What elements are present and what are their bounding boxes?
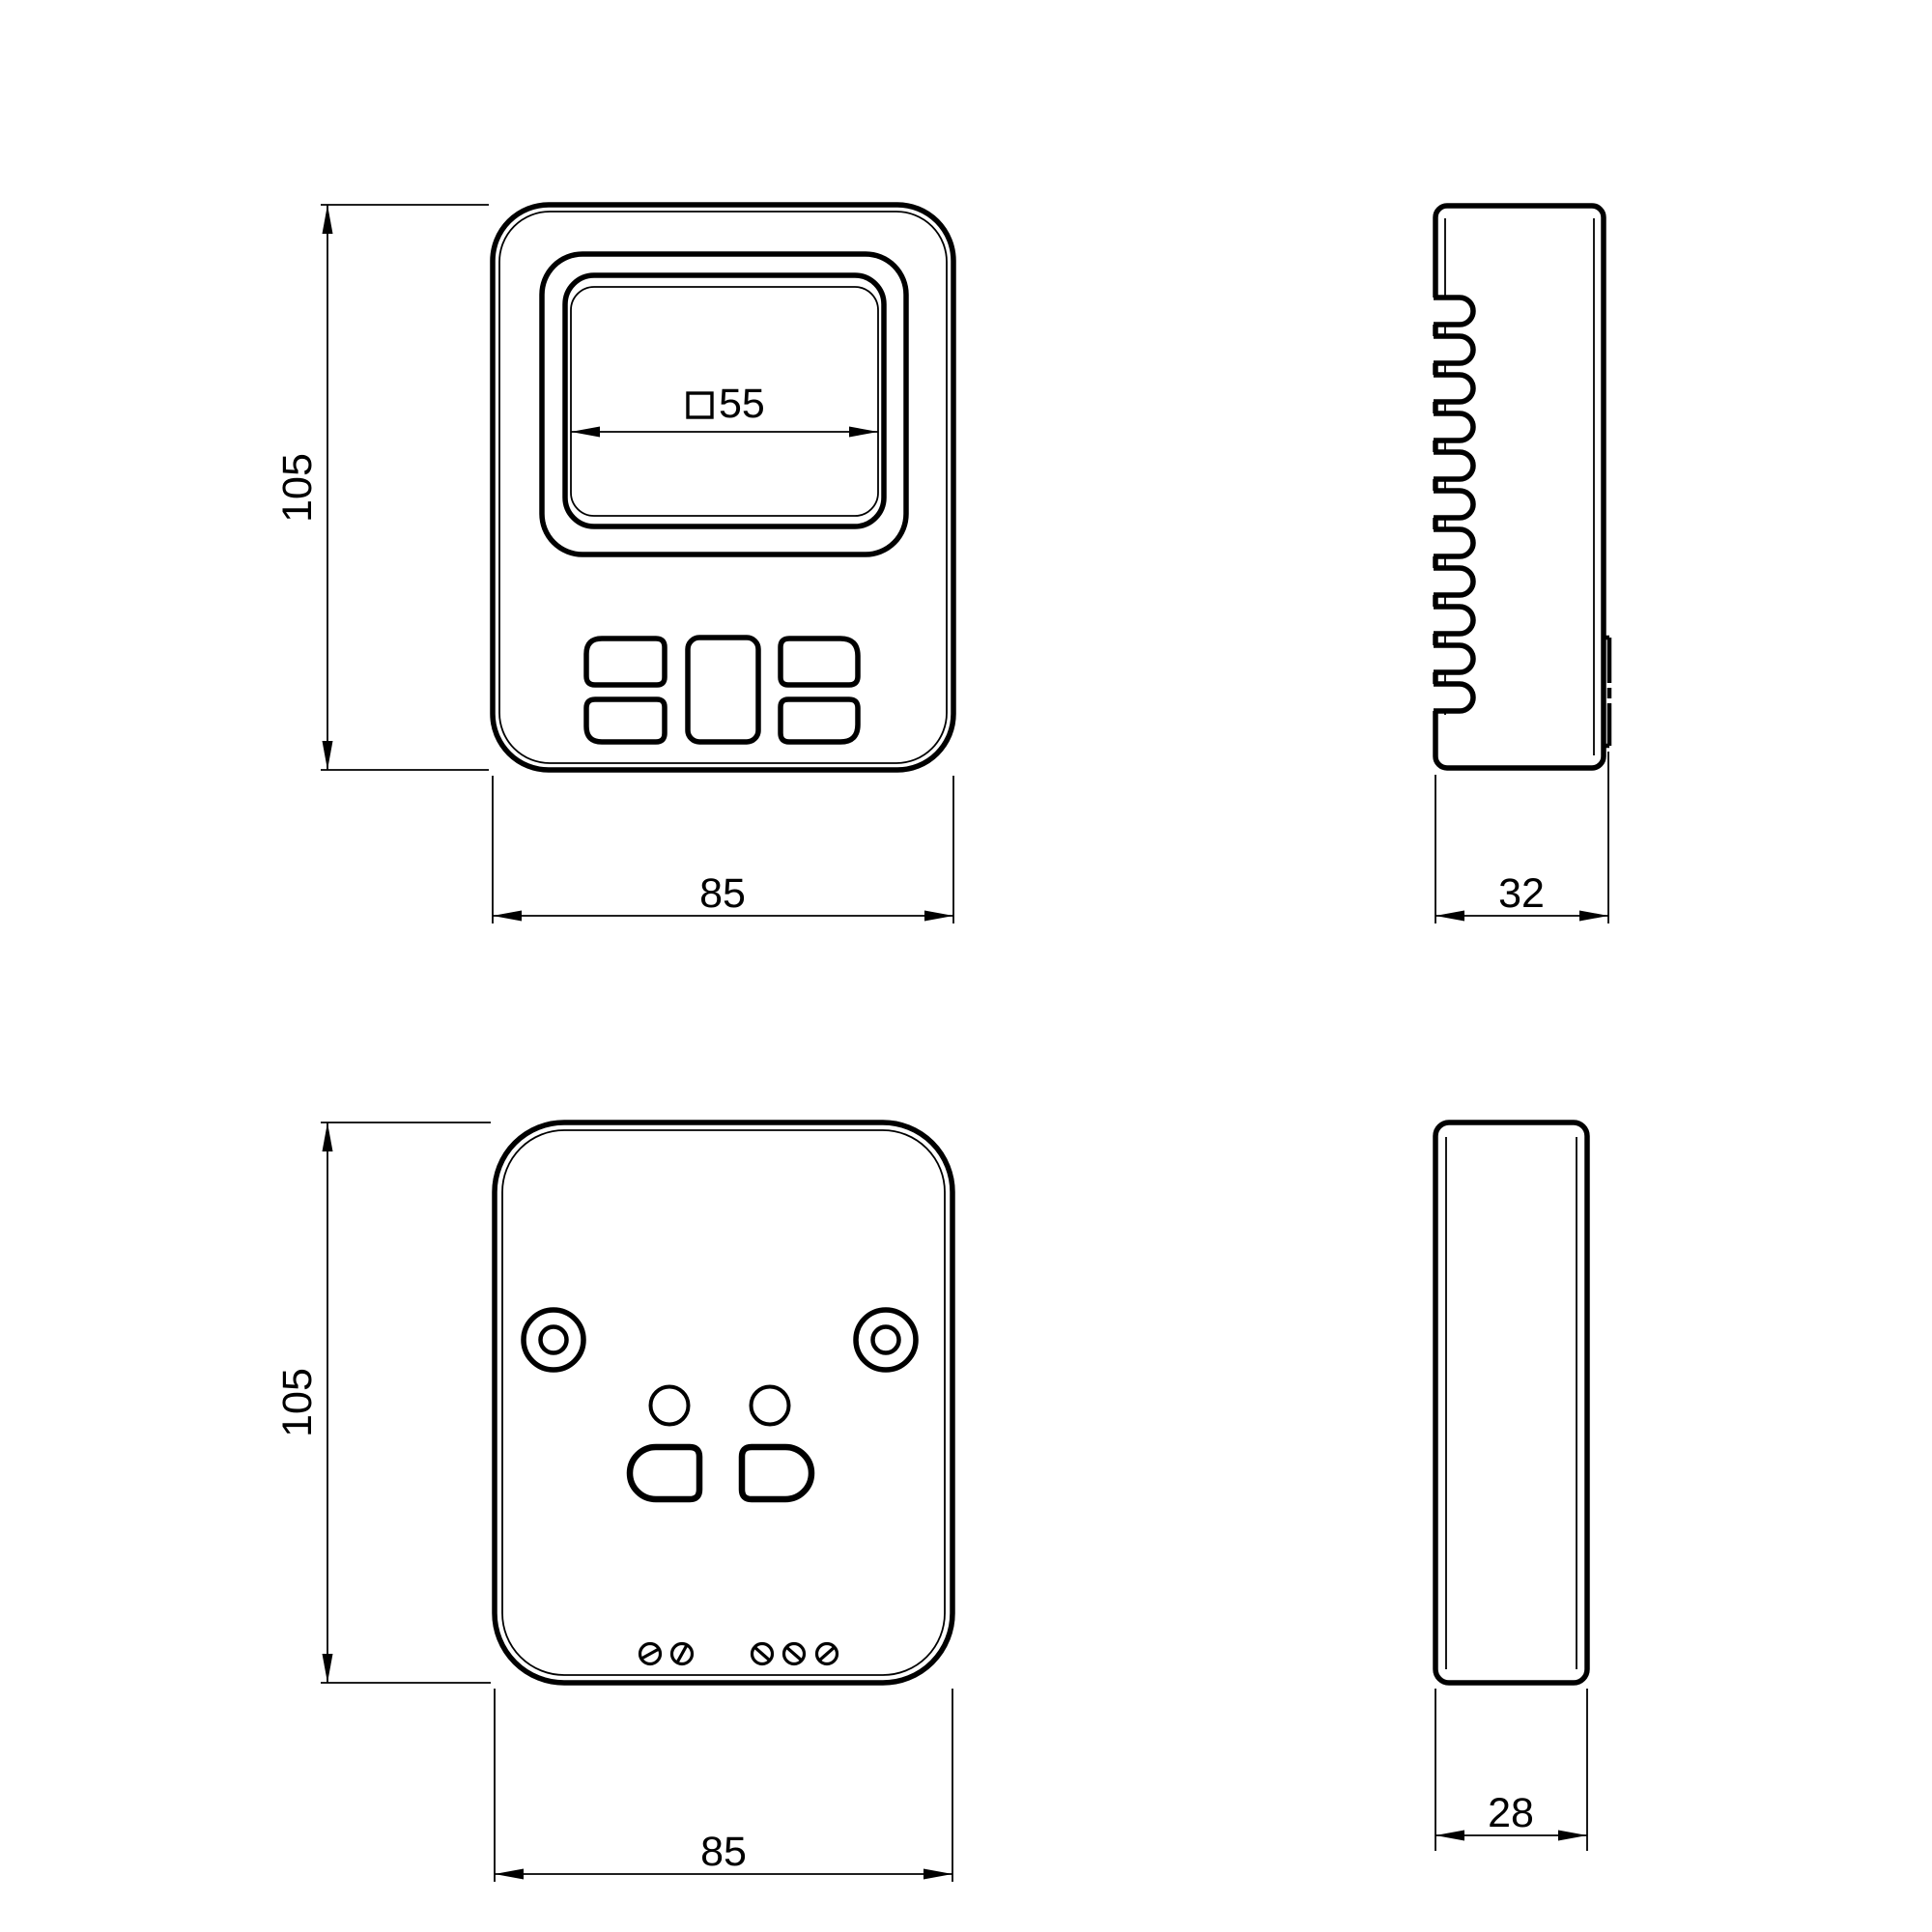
dim-arrow-left — [1435, 1831, 1464, 1841]
button-center — [688, 638, 758, 742]
mounting-hole-inner — [541, 1327, 567, 1353]
dim-back-height: 105 — [274, 1122, 491, 1683]
dim-back-width: 85 — [495, 1689, 952, 1882]
button-left-top — [586, 639, 665, 685]
dim-arrow-right — [1579, 911, 1608, 922]
vent-slot — [1431, 491, 1473, 518]
terminal-screw — [672, 1644, 693, 1664]
dim-arrow-up — [323, 205, 333, 234]
terminal-screws — [640, 1644, 838, 1664]
profile-view: 28 — [1435, 1122, 1587, 1851]
dim-arrow-up — [323, 1122, 333, 1151]
vent-slot — [1431, 413, 1473, 440]
dim-arrow-right — [1558, 1831, 1587, 1841]
button-left-bottom — [586, 699, 665, 742]
terminal-screw — [640, 1644, 661, 1664]
vent-slot — [1431, 568, 1473, 595]
vent-fins — [1431, 298, 1473, 711]
dim-arrow-down — [323, 741, 333, 770]
drawing-canvas: 55 105 85 — [0, 0, 1932, 1932]
dim-arrow-right — [923, 1869, 952, 1880]
dim-arrow-left — [493, 911, 522, 922]
vent-slot — [1431, 452, 1473, 479]
dim-front-height-label: 105 — [274, 453, 321, 523]
vent-slot — [1431, 684, 1473, 711]
dim-arrow-left — [1435, 911, 1464, 922]
wiring-slot-left — [630, 1447, 699, 1499]
right-side-view: 32 — [1431, 206, 1609, 923]
vent-slot — [1431, 645, 1473, 672]
dim-arrow-left — [495, 1869, 524, 1880]
vent-slot — [1431, 336, 1473, 363]
mounting-hole-outer — [524, 1310, 583, 1370]
dim-arrow-right — [924, 911, 953, 922]
mounting-hole-left — [524, 1310, 583, 1370]
terminal-screw — [784, 1644, 805, 1664]
terminal-screw — [817, 1644, 838, 1664]
mounting-hole-inner — [873, 1327, 899, 1353]
dim-back-width-label: 85 — [700, 1829, 747, 1875]
dim-arrow-down — [323, 1654, 333, 1683]
dim-side-depth: 32 — [1435, 752, 1608, 923]
button-right-top — [781, 639, 858, 685]
square-symbol — [688, 393, 712, 417]
dim-back-height-label: 105 — [274, 1368, 321, 1437]
profile-body-outline — [1435, 1122, 1587, 1683]
mounting-hole-outer — [856, 1310, 916, 1370]
cable-hole-left — [651, 1387, 689, 1425]
back-body-outline — [495, 1122, 952, 1683]
dim-front-height: 105 — [274, 205, 489, 770]
dim-front-width: 85 — [493, 776, 953, 923]
dim-arrow-right — [849, 427, 878, 438]
technical-drawing-page: 55 105 85 — [0, 0, 1932, 1932]
vent-slot — [1431, 529, 1473, 556]
dim-front-width-label: 85 — [699, 870, 746, 917]
vent-slot — [1431, 375, 1473, 402]
cable-hole-right — [752, 1387, 789, 1425]
dim-profile-depth-label: 28 — [1488, 1790, 1534, 1836]
vent-slot — [1431, 607, 1473, 634]
dim-profile-depth: 28 — [1435, 1689, 1587, 1851]
back-view: 105 85 — [274, 1122, 952, 1882]
dim-arrow-left — [571, 427, 600, 438]
terminal-screw — [753, 1644, 773, 1664]
dim-screen-cutout: 55 — [571, 381, 878, 438]
dim-side-depth-label: 32 — [1498, 870, 1545, 917]
wiring-slot-right — [742, 1447, 811, 1499]
button-right-bottom — [781, 699, 858, 742]
back-body-inner-edge — [502, 1130, 945, 1675]
mounting-hole-right — [856, 1310, 916, 1370]
vent-slot — [1431, 298, 1473, 325]
dim-screen-cutout-label: 55 — [719, 381, 765, 427]
front-view: 55 105 85 — [274, 205, 953, 923]
button-cluster — [586, 638, 858, 742]
